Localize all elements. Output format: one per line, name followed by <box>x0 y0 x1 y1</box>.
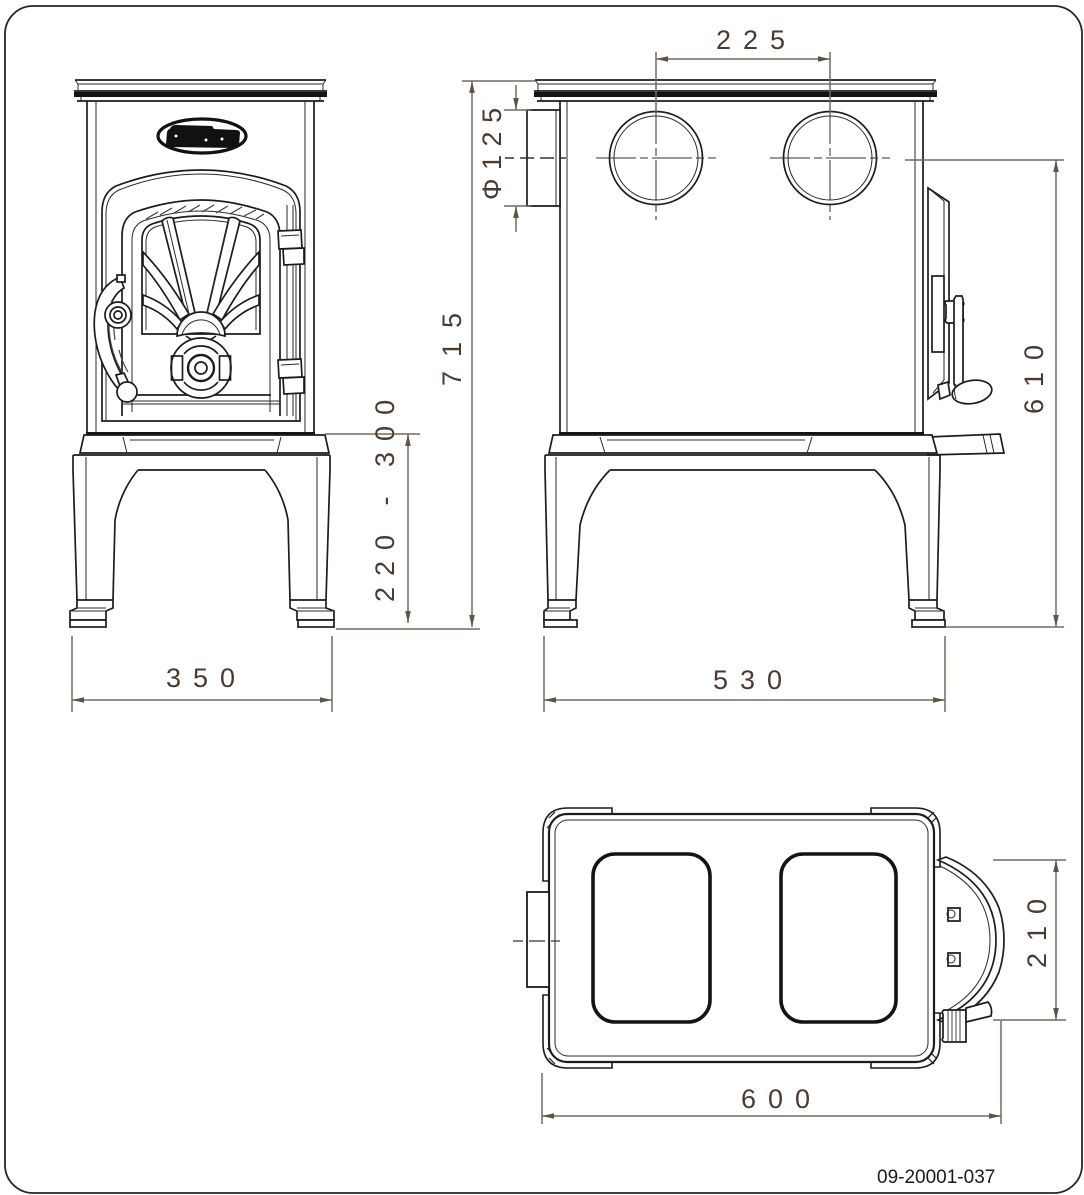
svg-text:220 - 300: 220 - 300 <box>370 389 400 602</box>
svg-text:Φ125: Φ125 <box>477 99 507 200</box>
svg-text:715: 715 <box>437 299 467 386</box>
svg-text:530: 530 <box>713 665 794 695</box>
svg-text:600: 600 <box>741 1084 822 1114</box>
svg-text:09-20001-037: 09-20001-037 <box>877 1167 995 1188</box>
svg-text:350: 350 <box>166 663 247 693</box>
svg-text:610: 610 <box>1019 333 1049 414</box>
svg-text:225: 225 <box>716 25 797 55</box>
svg-text:210: 210 <box>1022 887 1052 968</box>
